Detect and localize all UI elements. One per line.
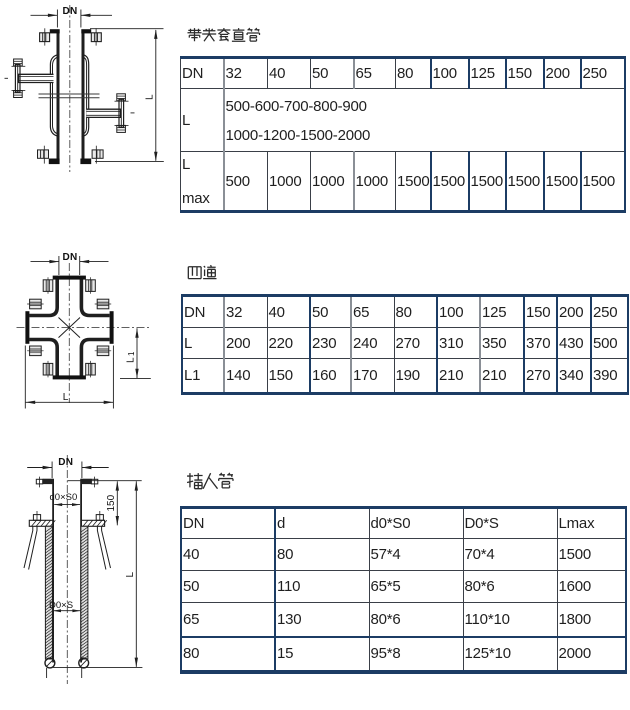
svg-text:DN: DN	[63, 252, 78, 263]
svg-text:D0×S: D0×S	[49, 600, 73, 611]
svg-text:150: 150	[106, 494, 117, 511]
svg-text:L: L	[125, 572, 136, 578]
svg-text:1: 1	[127, 351, 136, 356]
svg-text:L: L	[145, 94, 156, 100]
svg-text:L: L	[126, 357, 137, 363]
svg-text:d0×S0: d0×S0	[50, 492, 78, 503]
svg-text:L: L	[63, 392, 69, 403]
svg-text:DN: DN	[58, 457, 73, 468]
svg-text:DN: DN	[63, 6, 78, 17]
